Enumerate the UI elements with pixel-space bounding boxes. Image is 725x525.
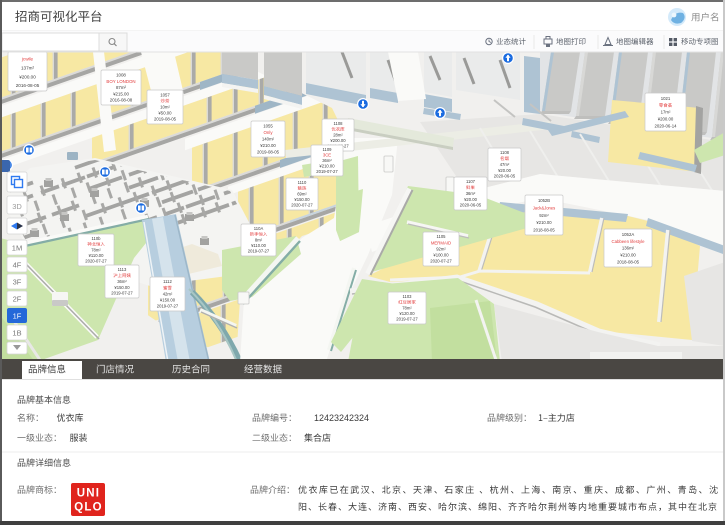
svg-text:BOY LONDON: BOY LONDON — [106, 79, 135, 84]
svg-text:¥210.00: ¥210.00 — [260, 143, 276, 148]
svg-text:1107: 1107 — [466, 179, 476, 184]
svg-text:¥110.00: ¥110.00 — [251, 243, 266, 248]
svg-text:42m²: 42m² — [163, 291, 173, 296]
svg-text:¥215.00: ¥215.00 — [113, 91, 129, 96]
svg-text:UNI: UNI — [77, 488, 100, 500]
svg-text:78m²: 78m² — [402, 305, 412, 310]
svg-text:2019-07-27: 2019-07-27 — [111, 291, 133, 296]
svg-text:92m²: 92m² — [539, 213, 549, 218]
svg-text:2020-06-05: 2020-06-05 — [494, 174, 516, 179]
svg-text:3F: 3F — [13, 278, 22, 287]
svg-text:QLO: QLO — [74, 502, 103, 514]
svg-text:¥200.00: ¥200.00 — [19, 74, 36, 79]
svg-text:36m²: 36m² — [322, 158, 332, 163]
svg-text:1021: 1021 — [661, 96, 671, 101]
svg-text:¥210.00: ¥210.00 — [319, 163, 335, 168]
svg-text:1110: 1110 — [298, 180, 307, 185]
svg-text:3D: 3D — [12, 202, 22, 211]
svg-text:2019-07-27: 2019-07-27 — [157, 304, 179, 309]
svg-text:137m²: 137m² — [21, 65, 34, 70]
svg-text:1M: 1M — [12, 244, 22, 253]
svg-text:4F: 4F — [13, 261, 22, 270]
svg-text:¥150.00: ¥150.00 — [294, 197, 310, 202]
svg-text:110A: 110A — [254, 226, 264, 231]
svg-text:2019-08-05: 2019-08-05 — [154, 117, 177, 122]
svg-text:2020-07-27: 2020-07-27 — [291, 203, 313, 208]
svg-text:3CE: 3CE — [323, 152, 331, 157]
svg-text:2019-07-27: 2019-07-27 — [248, 249, 270, 254]
svg-text:jcwile: jcwile — [21, 57, 34, 62]
svg-text:2F: 2F — [13, 295, 22, 304]
svg-text:17m²: 17m² — [661, 110, 671, 115]
svg-text:¥20.00: ¥20.00 — [498, 168, 511, 173]
svg-text:¥200.00: ¥200.00 — [658, 117, 674, 122]
svg-text:2018-08-05: 2018-08-05 — [533, 227, 555, 232]
svg-text:1055: 1055 — [263, 124, 273, 129]
svg-text:36m²: 36m² — [117, 279, 127, 284]
svg-text:47m²: 47m² — [500, 162, 510, 167]
svg-text:Cabbeen lifestyle: Cabbeen lifestyle — [612, 239, 646, 244]
svg-text:2020-07-27: 2020-07-27 — [85, 259, 107, 264]
svg-text:140m²: 140m² — [262, 137, 275, 142]
svg-text:2019-08-05: 2019-08-05 — [257, 150, 280, 155]
svg-text:92m²: 92m² — [436, 246, 446, 251]
svg-text:¥50.00: ¥50.00 — [158, 111, 172, 116]
svg-text:1057: 1057 — [160, 92, 170, 97]
svg-text:¥120.00: ¥120.00 — [399, 311, 415, 316]
svg-text:8m²: 8m² — [255, 237, 263, 242]
svg-text:2020-06-05: 2020-06-05 — [460, 203, 482, 208]
svg-text:2016-08-05: 2016-08-05 — [16, 83, 40, 88]
svg-text:1105: 1105 — [436, 234, 446, 239]
svg-text:1113: 1113 — [118, 267, 127, 272]
svg-text:110b: 110b — [91, 236, 101, 241]
svg-text:78m²: 78m² — [91, 247, 101, 252]
svg-text:10m²: 10m² — [160, 104, 170, 109]
svg-text:1052A: 1052A — [622, 232, 635, 237]
svg-text:36m²: 36m² — [466, 191, 476, 196]
svg-text:1103: 1103 — [402, 294, 412, 299]
svg-text:¥20.00: ¥20.00 — [464, 197, 477, 202]
svg-text:1109: 1109 — [322, 147, 332, 152]
svg-text:1008: 1008 — [116, 72, 126, 77]
svg-text:2019-07-27: 2019-07-27 — [316, 169, 338, 174]
svg-text:¥110.00: ¥110.00 — [89, 253, 104, 258]
svg-text:1B: 1B — [12, 329, 21, 338]
svg-text:¥210.00: ¥210.00 — [620, 253, 636, 258]
svg-text:136m²: 136m² — [622, 246, 635, 251]
svg-text:1052B: 1052B — [538, 198, 550, 203]
svg-text:MERMAID: MERMAID — [431, 240, 451, 245]
svg-text:12423242324: 12423242324 — [314, 413, 369, 423]
svg-text:28m²: 28m² — [333, 132, 343, 137]
svg-text:69m²: 69m² — [297, 191, 307, 196]
svg-text:1108: 1108 — [500, 150, 510, 155]
svg-text:2020-07-27: 2020-07-27 — [430, 259, 452, 264]
svg-text:1F: 1F — [13, 312, 22, 321]
svg-text:¥210.00: ¥210.00 — [536, 220, 552, 225]
svg-text:¥200.00: ¥200.00 — [330, 138, 346, 143]
svg-text:2016-08-08: 2016-08-08 — [110, 98, 133, 103]
svg-text:1108: 1108 — [333, 121, 343, 126]
svg-text:¥150.00: ¥150.00 — [160, 298, 176, 303]
svg-text:2018-08-05: 2018-08-05 — [617, 259, 640, 264]
svg-text:87m²: 87m² — [116, 85, 127, 90]
svg-text:1112: 1112 — [163, 279, 172, 284]
svg-text:Only: Only — [263, 130, 273, 135]
svg-text:2019-07-27: 2019-07-27 — [396, 317, 418, 322]
svg-text:Jack&Jones: Jack&Jones — [533, 205, 556, 210]
svg-text:¥150.00: ¥150.00 — [114, 285, 130, 290]
svg-text:2020-06-14: 2020-06-14 — [655, 123, 678, 128]
svg-text:¥100.00: ¥100.00 — [433, 253, 449, 258]
